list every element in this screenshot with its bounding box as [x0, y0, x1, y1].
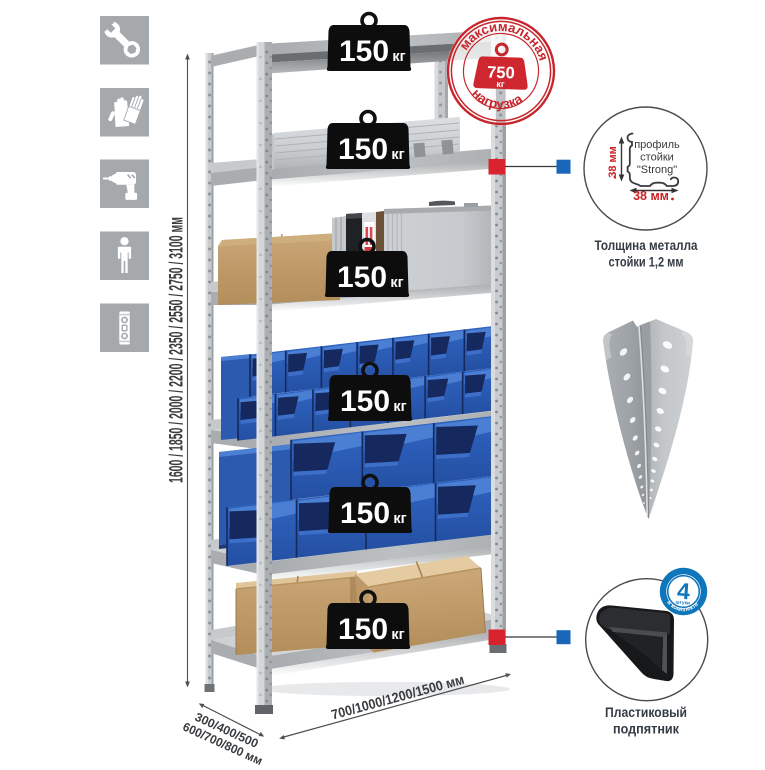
svg-text:150: 150 — [338, 613, 388, 646]
svg-text:стойки: стойки — [640, 152, 674, 164]
svg-text:кг: кг — [393, 511, 406, 527]
svg-text:150: 150 — [337, 261, 387, 294]
svg-text:38 мм: 38 мм — [633, 189, 669, 203]
svg-text:150: 150 — [340, 497, 390, 530]
svg-text:38 мм: 38 мм — [607, 146, 619, 178]
svg-text:кг: кг — [393, 399, 406, 415]
svg-text:кг: кг — [391, 627, 404, 643]
svg-text:150: 150 — [340, 385, 390, 418]
svg-text:подпятник: подпятник — [613, 722, 679, 737]
svg-text:1600 / 1850 / 2000 / 2200 / 23: 1600 / 1850 / 2000 / 2200 / 2350 / 2550 … — [167, 217, 188, 483]
svg-text:стойки 1,2 мм: стойки 1,2 мм — [609, 255, 684, 270]
svg-text:150: 150 — [338, 133, 388, 166]
svg-text:"Strong": "Strong" — [637, 164, 677, 176]
svg-text:150: 150 — [339, 35, 389, 68]
svg-text:Толщина металла: Толщина металла — [595, 238, 698, 253]
svg-text:кг: кг — [392, 49, 405, 65]
svg-text:штуки: штуки — [675, 600, 690, 606]
svg-text:кг: кг — [390, 275, 403, 291]
svg-text:кг: кг — [496, 79, 505, 89]
svg-text:профиль: профиль — [634, 139, 680, 151]
svg-text:кг: кг — [391, 147, 404, 163]
svg-text:Пластиковый: Пластиковый — [605, 705, 687, 720]
